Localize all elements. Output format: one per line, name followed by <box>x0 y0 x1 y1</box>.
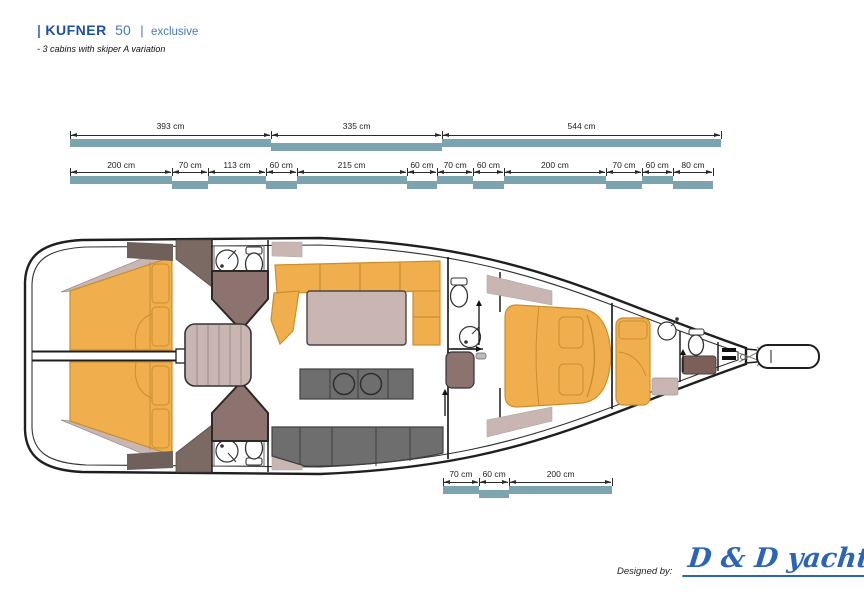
sink <box>216 250 238 272</box>
drain <box>464 340 468 344</box>
toilet-tank <box>451 278 467 285</box>
yacht-layout-sheet: | KUFNER 50 | exclusive - 3 cabins with … <box>0 0 864 610</box>
designed-by-label: Designed by: <box>617 566 672 577</box>
drain <box>220 444 224 448</box>
boat-floor-plan <box>0 0 864 610</box>
bowsprit <box>746 345 819 368</box>
accessory <box>476 353 486 359</box>
faucet-knob <box>675 317 679 321</box>
shower-seat <box>446 352 474 388</box>
salon-table <box>307 291 406 345</box>
toilet-tank <box>689 329 704 335</box>
sink <box>658 322 676 340</box>
drain <box>220 264 224 268</box>
hull-locker <box>127 242 173 261</box>
windlass-step <box>722 348 736 352</box>
skipper-bed <box>616 318 650 405</box>
sink <box>460 327 481 348</box>
hull-locker <box>127 451 173 470</box>
galley-island <box>300 369 413 399</box>
counter <box>682 356 716 374</box>
companionway-stairs <box>185 324 251 386</box>
cabinet <box>652 378 678 395</box>
salon-trim-port <box>272 242 302 257</box>
windlass-step <box>722 356 736 360</box>
studio-logo: D & D yachts <box>682 543 864 577</box>
sink <box>216 440 238 462</box>
toilet <box>689 335 704 355</box>
toilet <box>451 285 468 307</box>
